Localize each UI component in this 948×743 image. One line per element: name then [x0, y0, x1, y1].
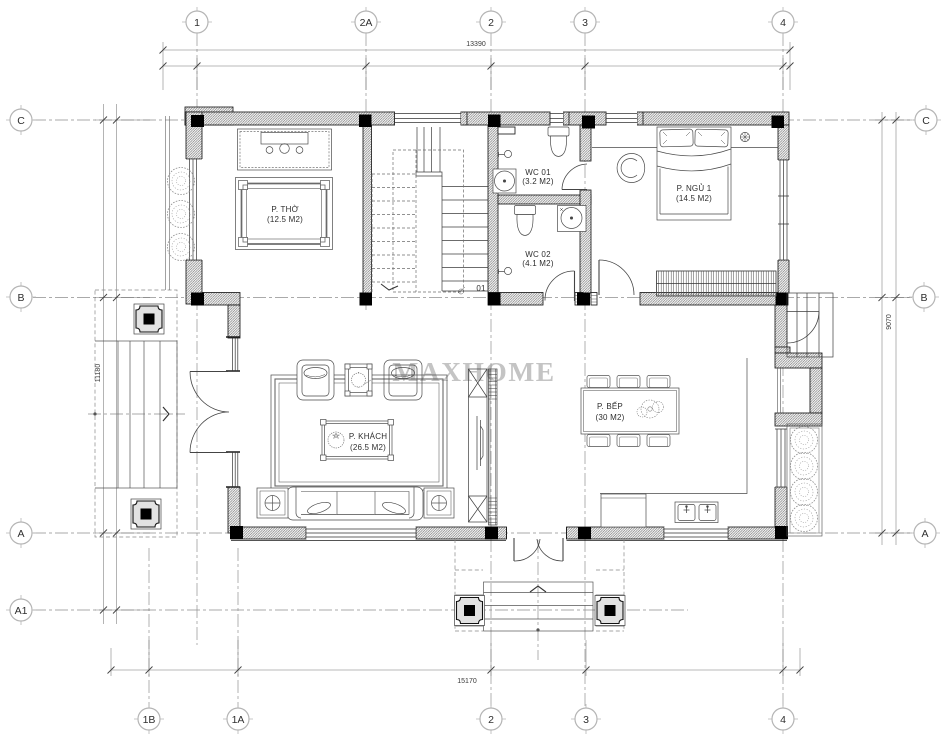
svg-text:1B: 1B — [143, 714, 156, 726]
svg-text:01: 01 — [476, 284, 486, 293]
svg-text:(3.2 M2): (3.2 M2) — [522, 177, 554, 186]
svg-text:B: B — [17, 292, 24, 304]
svg-text:(30 M2): (30 M2) — [596, 413, 625, 422]
svg-text:9070: 9070 — [886, 314, 893, 330]
svg-text:3: 3 — [583, 714, 589, 726]
svg-text:(14.5 M2): (14.5 M2) — [676, 194, 712, 203]
svg-text:WC 01: WC 01 — [525, 168, 551, 177]
svg-text:WC 02: WC 02 — [525, 250, 551, 259]
svg-text:P. NGỦ 1: P. NGỦ 1 — [677, 184, 712, 193]
svg-text:(12.5 M2): (12.5 M2) — [267, 215, 303, 224]
svg-text:4: 4 — [780, 17, 786, 29]
svg-text:P. THỜ: P. THỜ — [271, 205, 298, 214]
svg-text:A1: A1 — [15, 605, 28, 617]
svg-text:1: 1 — [194, 17, 200, 29]
svg-text:P. KHÁCH: P. KHÁCH — [349, 432, 387, 441]
svg-text:C: C — [922, 115, 930, 127]
svg-text:2: 2 — [488, 17, 494, 29]
svg-text:(26.5 M2): (26.5 M2) — [350, 443, 386, 452]
svg-text:2A: 2A — [360, 17, 373, 29]
svg-text:B: B — [920, 292, 927, 304]
svg-text:15170: 15170 — [457, 678, 477, 685]
svg-text:1A: 1A — [232, 714, 245, 726]
svg-text:4: 4 — [780, 714, 786, 726]
svg-text:(4.1 M2): (4.1 M2) — [522, 259, 554, 268]
svg-text:A: A — [921, 528, 928, 540]
svg-text:2: 2 — [488, 714, 494, 726]
svg-text:3: 3 — [582, 17, 588, 29]
svg-text:13390: 13390 — [466, 41, 486, 48]
svg-text:P. BẾP: P. BẾP — [597, 401, 623, 411]
svg-text:11180: 11180 — [95, 364, 102, 383]
svg-text:A: A — [17, 528, 24, 540]
svg-text:C: C — [17, 115, 25, 127]
